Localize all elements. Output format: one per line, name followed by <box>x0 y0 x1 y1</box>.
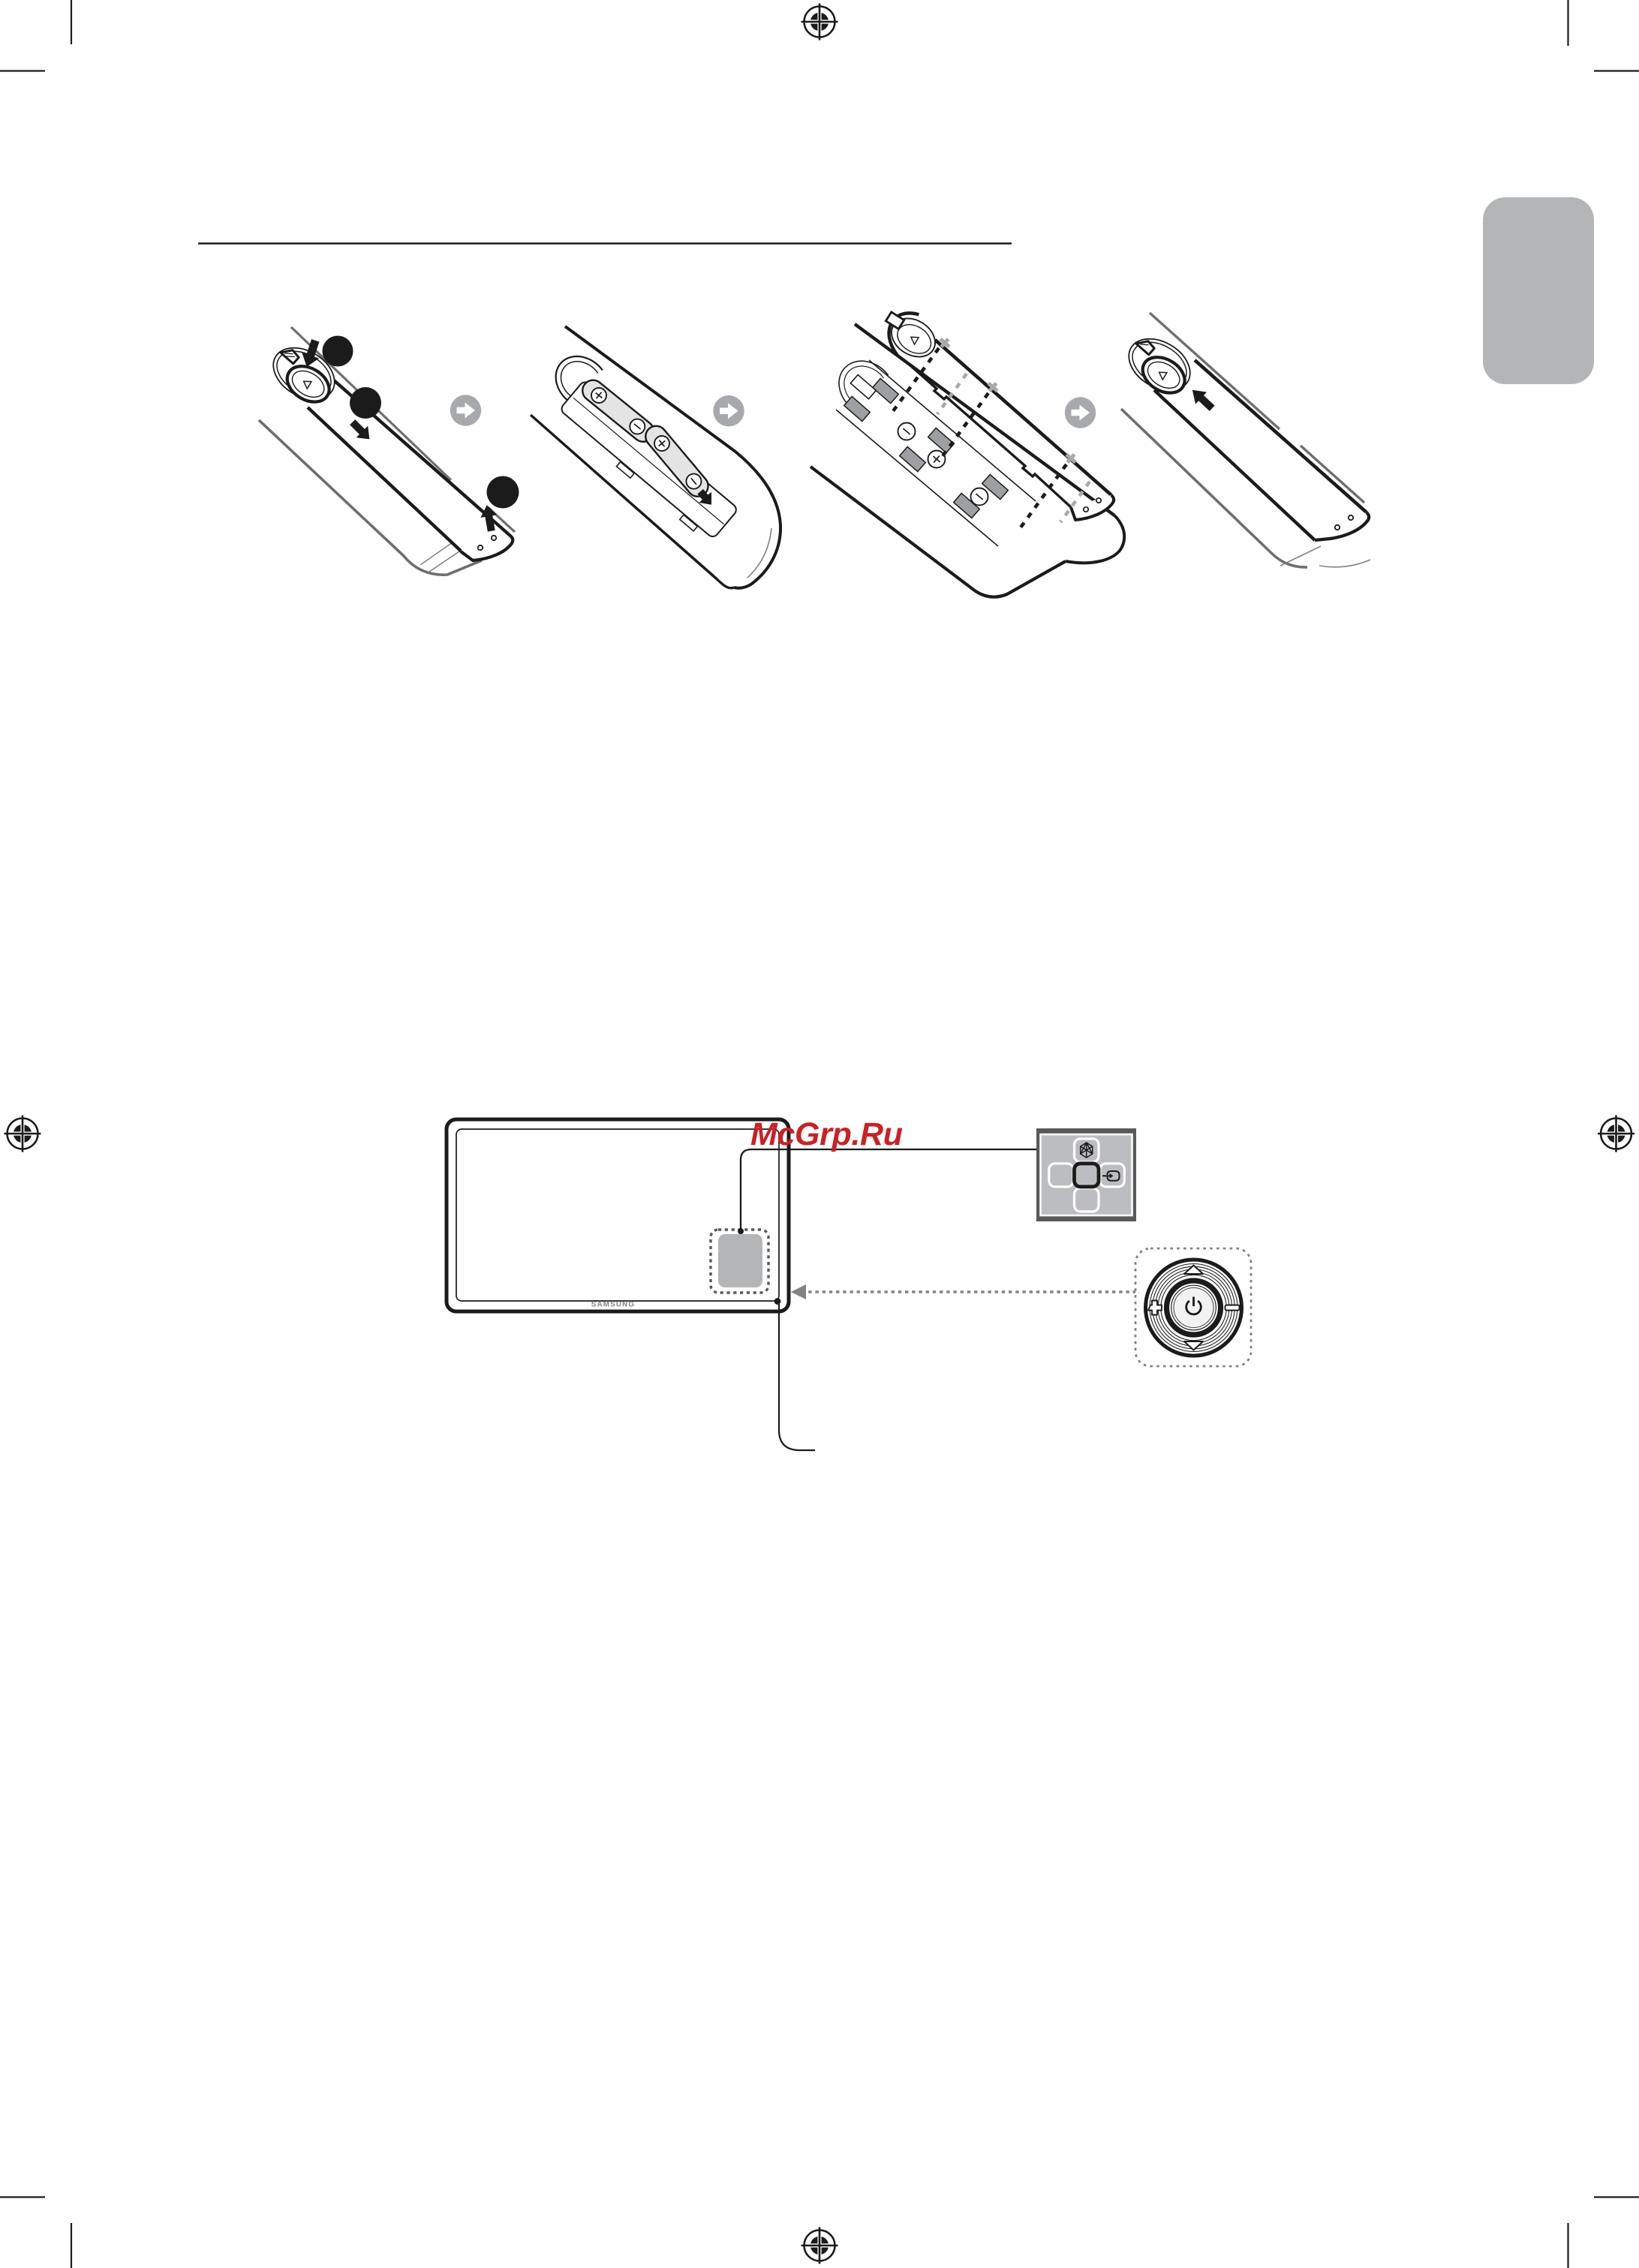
svg-text:SAMSUNG: SAMSUNG <box>591 1301 635 1309</box>
svg-text:McGrp.Ru: McGrp.Ru <box>750 1116 903 1152</box>
